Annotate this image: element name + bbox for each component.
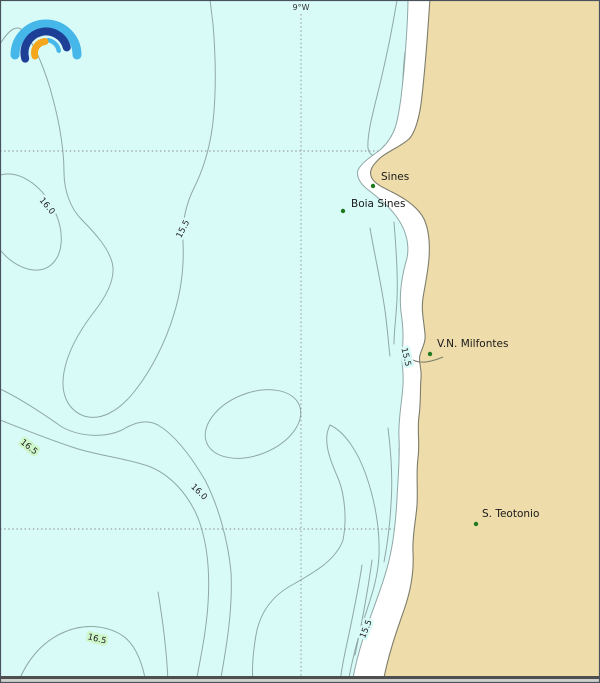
place-label-boia-sines: Boia Sines	[351, 198, 405, 210]
place-dot-s-teotonio	[474, 522, 478, 526]
place-dot-sines	[371, 184, 375, 188]
place-label-vn-milfontes: V.N. Milfontes	[437, 338, 508, 350]
map-canvas: 9°W 16.0 15.5 15.5 16.5 16.0 16.5 15.5 S…	[0, 0, 600, 683]
place-label-sines: Sines	[381, 171, 409, 183]
longitude-label: 9°W	[293, 3, 310, 12]
sst-map: 9°W 16.0 15.5 15.5 16.5 16.0 16.5 15.5 S…	[0, 0, 600, 683]
frame-bottom-line	[0, 676, 600, 679]
place-dot-vn-milfontes	[428, 352, 432, 356]
place-label-s-teotonio: S. Teotonio	[482, 508, 539, 520]
place-dot-boia-sines	[341, 209, 345, 213]
